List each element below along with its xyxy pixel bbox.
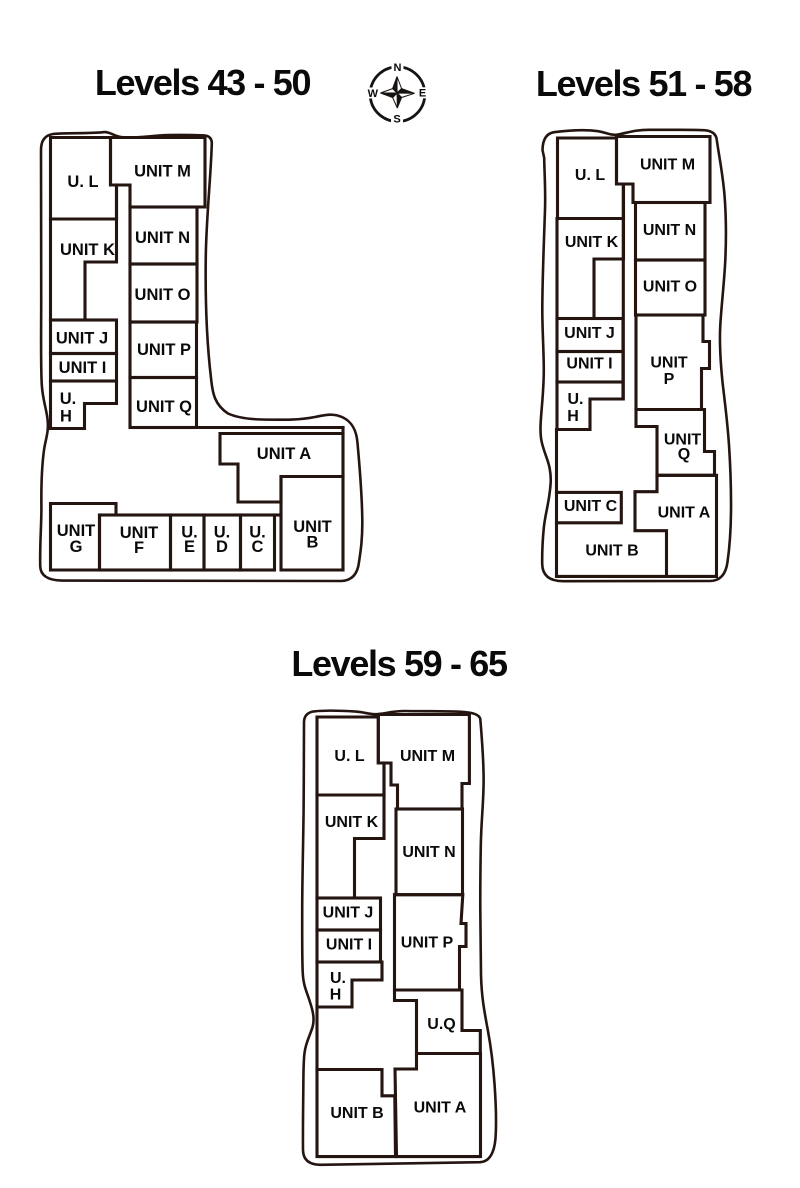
svg-text:P: P <box>664 371 675 388</box>
svg-text:U.: U. <box>330 970 346 987</box>
svg-text:UNIT I: UNIT I <box>566 356 612 373</box>
svg-text:UNIT M: UNIT M <box>400 748 455 765</box>
svg-text:Levels 43 - 50: Levels 43 - 50 <box>95 62 311 103</box>
svg-text:H: H <box>330 987 342 1004</box>
svg-text:Levels 59 - 65: Levels 59 - 65 <box>291 643 508 684</box>
svg-text:W: W <box>368 88 379 100</box>
svg-text:UNIT I: UNIT I <box>326 937 372 954</box>
svg-text:UNIT Q: UNIT Q <box>136 398 192 416</box>
svg-text:UNIT O: UNIT O <box>135 286 191 304</box>
svg-text:UNIT A: UNIT A <box>658 505 711 522</box>
svg-text:UNIT M: UNIT M <box>134 163 191 181</box>
svg-text:UNIT B: UNIT B <box>330 1105 383 1122</box>
svg-text:D: D <box>216 538 228 556</box>
svg-text:UNIT A: UNIT A <box>257 445 311 463</box>
svg-text:UNIT J: UNIT J <box>564 325 615 342</box>
svg-text:Q: Q <box>678 446 690 463</box>
svg-text:U.: U. <box>568 391 584 408</box>
svg-text:UNIT I: UNIT I <box>59 359 107 377</box>
svg-text:U. L: U. L <box>575 167 605 184</box>
svg-text:UNIT K: UNIT K <box>60 241 115 259</box>
svg-text:UNIT K: UNIT K <box>325 814 379 831</box>
svg-text:S: S <box>393 113 400 125</box>
svg-text:UNIT N: UNIT N <box>135 229 190 247</box>
svg-text:UNIT K: UNIT K <box>565 234 619 251</box>
svg-text:C: C <box>252 538 264 556</box>
svg-text:UNIT C: UNIT C <box>564 498 618 515</box>
svg-text:G: G <box>70 538 83 556</box>
svg-text:U. L: U. L <box>334 748 364 765</box>
svg-text:H: H <box>567 408 579 425</box>
svg-text:UNIT N: UNIT N <box>643 222 696 239</box>
svg-text:UNIT J: UNIT J <box>56 330 108 348</box>
svg-text:UNIT M: UNIT M <box>640 157 695 174</box>
svg-text:F: F <box>134 539 144 557</box>
svg-text:U. L: U. L <box>67 173 98 191</box>
svg-text:UNIT A: UNIT A <box>414 1100 467 1117</box>
svg-text:UNIT P: UNIT P <box>137 341 191 359</box>
svg-text:U.Q: U.Q <box>427 1016 455 1033</box>
svg-text:UNIT N: UNIT N <box>402 844 455 861</box>
svg-text:N: N <box>394 62 402 74</box>
svg-text:UNIT B: UNIT B <box>585 543 638 560</box>
svg-text:B: B <box>307 534 319 552</box>
svg-text:U.: U. <box>60 390 77 408</box>
svg-text:UNIT O: UNIT O <box>643 279 697 296</box>
svg-text:UNIT J: UNIT J <box>323 905 374 922</box>
svg-text:H: H <box>60 408 72 426</box>
svg-text:E: E <box>184 538 195 556</box>
svg-text:UNIT: UNIT <box>650 355 688 372</box>
svg-text:Levels 51 - 58: Levels 51 - 58 <box>536 63 752 104</box>
svg-text:E: E <box>419 88 426 100</box>
svg-text:UNIT P: UNIT P <box>401 935 454 952</box>
